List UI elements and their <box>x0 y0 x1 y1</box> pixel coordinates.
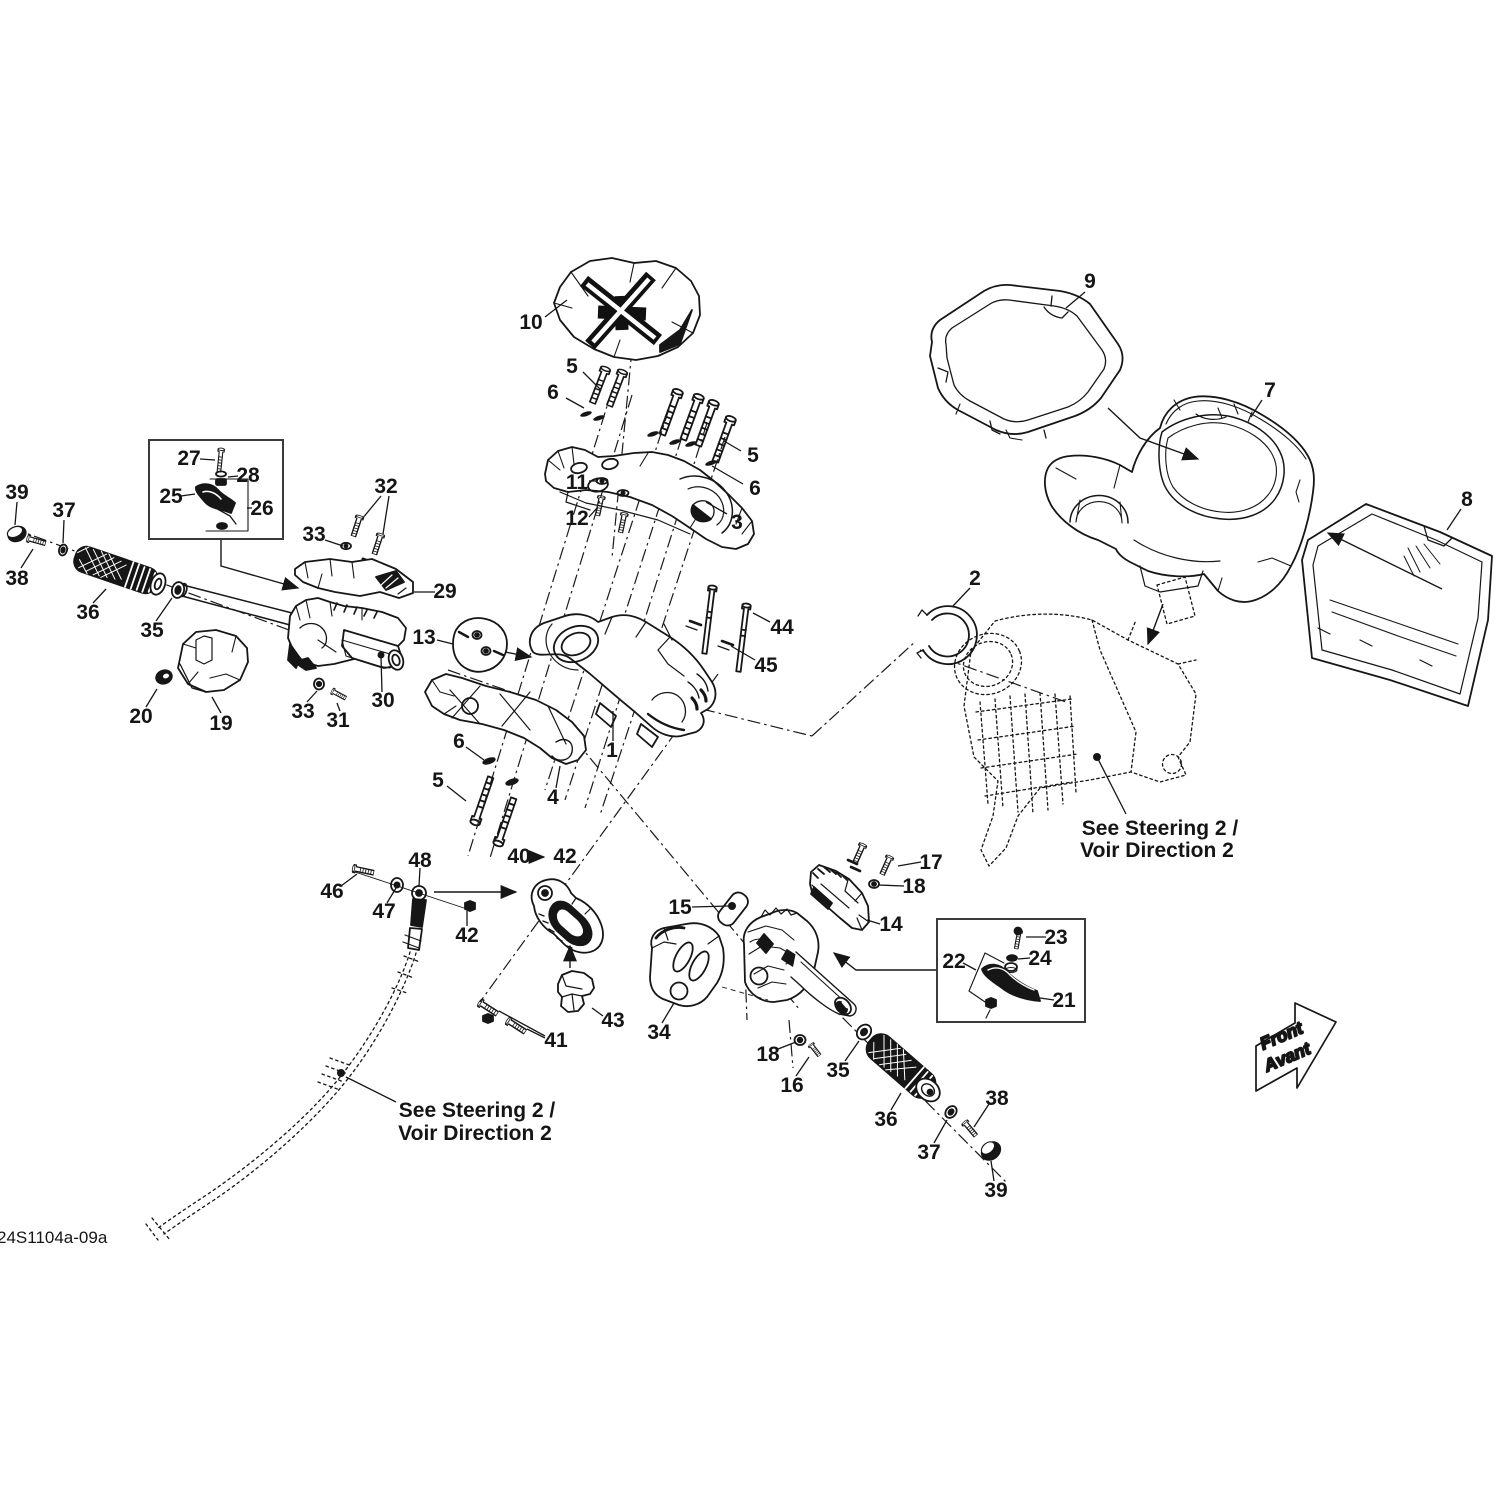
svg-text:4: 4 <box>547 786 559 809</box>
svg-text:42: 42 <box>455 924 478 947</box>
svg-text:10: 10 <box>519 311 542 334</box>
svg-text:31: 31 <box>326 709 350 732</box>
svg-text:28: 28 <box>236 464 260 487</box>
svg-text:44: 44 <box>770 616 794 639</box>
svg-text:33: 33 <box>302 523 325 546</box>
svg-text:21: 21 <box>1052 989 1076 1012</box>
svg-text:36: 36 <box>76 601 99 624</box>
svg-text:47: 47 <box>372 900 395 923</box>
svg-text:41: 41 <box>544 1029 568 1052</box>
svg-text:15: 15 <box>668 896 692 919</box>
svg-text:43: 43 <box>601 1009 624 1032</box>
svg-text:13: 13 <box>412 626 435 649</box>
svg-text:Voir Direction 2: Voir Direction 2 <box>1080 839 1234 862</box>
svg-text:See Steering 2 /: See Steering 2 / <box>1082 817 1239 840</box>
svg-text:6: 6 <box>547 381 559 404</box>
svg-text:46: 46 <box>320 880 343 903</box>
svg-text:39: 39 <box>5 481 28 504</box>
svg-text:7: 7 <box>1264 379 1276 402</box>
svg-text:33: 33 <box>291 700 314 723</box>
svg-text:11: 11 <box>566 471 589 494</box>
svg-text:48: 48 <box>408 849 432 872</box>
svg-text:14: 14 <box>879 913 903 936</box>
svg-text:24: 24 <box>1028 947 1052 970</box>
svg-text:Voir Direction 2: Voir Direction 2 <box>398 1122 552 1145</box>
svg-text:37: 37 <box>917 1141 940 1164</box>
svg-text:17: 17 <box>919 851 942 874</box>
svg-text:38: 38 <box>985 1087 1009 1110</box>
svg-text:6: 6 <box>749 477 761 500</box>
svg-text:9: 9 <box>1084 270 1096 293</box>
svg-text:35: 35 <box>826 1059 850 1082</box>
svg-text:29: 29 <box>433 580 456 603</box>
svg-text:27: 27 <box>177 447 200 470</box>
svg-text:40: 40 <box>507 845 530 868</box>
svg-text:16: 16 <box>780 1074 803 1097</box>
svg-text:36: 36 <box>874 1108 897 1131</box>
svg-text:39: 39 <box>984 1179 1007 1202</box>
svg-text:18: 18 <box>756 1043 780 1066</box>
svg-text:38: 38 <box>5 567 29 590</box>
svg-text:18: 18 <box>902 875 926 898</box>
svg-text:20: 20 <box>129 705 152 728</box>
svg-text:19: 19 <box>209 712 232 735</box>
svg-text:45: 45 <box>754 654 778 677</box>
svg-text:1: 1 <box>606 739 618 762</box>
svg-text:3: 3 <box>731 511 743 534</box>
svg-text:22: 22 <box>942 950 965 973</box>
svg-text:12: 12 <box>565 507 588 530</box>
svg-text:See Steering 2 /: See Steering 2 / <box>399 1099 556 1122</box>
svg-text:6: 6 <box>453 730 465 753</box>
svg-text:26: 26 <box>250 497 273 520</box>
svg-text:23: 23 <box>1044 926 1067 949</box>
svg-text:24S1104a-09a: 24S1104a-09a <box>0 1228 108 1247</box>
svg-text:35: 35 <box>140 619 164 642</box>
svg-text:34: 34 <box>647 1021 671 1044</box>
svg-text:5: 5 <box>432 769 444 792</box>
svg-text:30: 30 <box>371 689 394 712</box>
svg-text:5: 5 <box>566 355 578 378</box>
svg-text:32: 32 <box>374 475 397 498</box>
svg-text:2: 2 <box>969 567 981 590</box>
svg-text:5: 5 <box>747 444 759 467</box>
svg-text:25: 25 <box>159 485 183 508</box>
svg-text:37: 37 <box>52 499 75 522</box>
svg-text:42: 42 <box>553 845 576 868</box>
svg-text:8: 8 <box>1461 488 1473 511</box>
